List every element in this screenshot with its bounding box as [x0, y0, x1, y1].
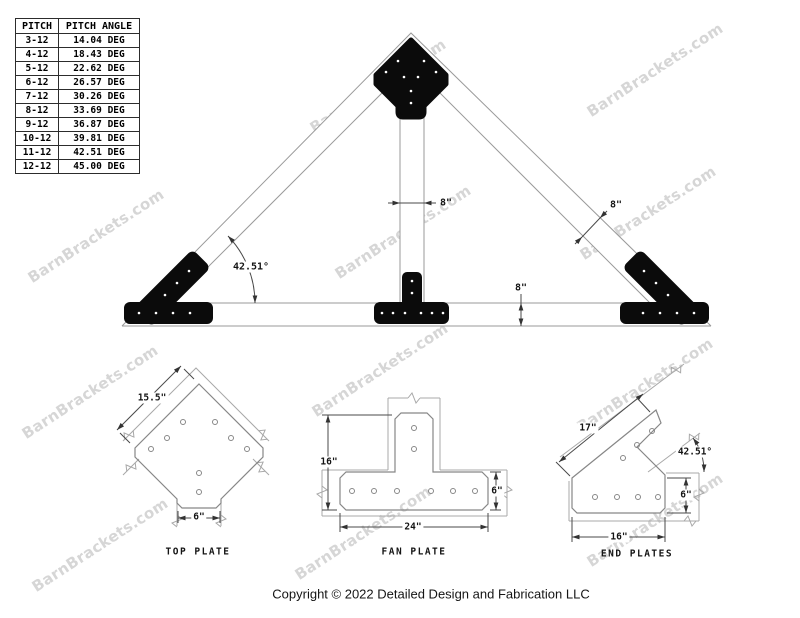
- pitch-angle-cell: 39.81 DEG: [59, 132, 140, 146]
- pitch-angle-cell: 45.00 DEG: [59, 160, 140, 174]
- pitch-table-row: 5-1222.62 DEG: [16, 62, 140, 76]
- pitch-angle-column-header: PITCH ANGLE: [59, 19, 140, 34]
- pitch-table-row: 10-1239.81 DEG: [16, 132, 140, 146]
- end-plates-dimensions: [556, 394, 704, 542]
- pitch-table-row: 9-1236.87 DEG: [16, 118, 140, 132]
- pitch-angle-cell: 22.62 DEG: [59, 62, 140, 76]
- fan-plate-holes: [350, 426, 478, 494]
- end-plates-base-dim: 16": [608, 532, 629, 543]
- fan-plate-width-dim: 24": [402, 522, 423, 533]
- fan-plate-beams: [317, 393, 512, 516]
- fan-plate-dimensions: [322, 415, 501, 532]
- top-plate-stem-dim: 6": [191, 512, 206, 523]
- pitch-cell: 7-12: [16, 90, 59, 104]
- copyright-notice: Copyright © 2022 Detailed Design and Fab…: [272, 587, 589, 602]
- pitch-cell: 3-12: [16, 34, 59, 48]
- top-plate-edge-dim: 15.5": [136, 393, 169, 404]
- pitch-angle-table: PITCH PITCH ANGLE 3-1214.04 DEG4-1218.43…: [15, 18, 140, 174]
- left-end-bracket: [124, 249, 213, 327]
- king-post-width-label: 8": [440, 198, 452, 209]
- right-end-bracket: [620, 249, 709, 327]
- pitch-cell: 8-12: [16, 104, 59, 118]
- pitch-table-row: 7-1230.26 DEG: [16, 90, 140, 104]
- pitch-table-header: PITCH PITCH ANGLE: [16, 19, 140, 34]
- fan-plate-height-dim: 16": [318, 457, 339, 468]
- end-plates-holes: [593, 429, 661, 500]
- pitch-cell: 11-12: [16, 146, 59, 160]
- pitch-cell: 6-12: [16, 76, 59, 90]
- pitch-cell: 4-12: [16, 48, 59, 62]
- rafter-width-label: 8": [610, 200, 622, 211]
- end-plates-angle-dim: 42.51°: [676, 447, 714, 458]
- end-plates-title: END PLATES: [601, 549, 673, 560]
- pitch-cell: 10-12: [16, 132, 59, 146]
- pitch-table-row: 3-1214.04 DEG: [16, 34, 140, 48]
- pitch-table-row: 12-1245.00 DEG: [16, 160, 140, 174]
- center-fan-bracket: [374, 272, 449, 324]
- end-plates-bar-dim: 6": [678, 490, 693, 501]
- end-plates-arm-dim: 17": [577, 423, 598, 434]
- fan-plate-bar-dim: 6": [489, 486, 504, 497]
- top-plate-title: TOP PLATE: [166, 547, 231, 558]
- peak-bracket: [376, 40, 446, 117]
- pitch-cell: 12-12: [16, 160, 59, 174]
- pitch-angle-cell: 30.26 DEG: [59, 90, 140, 104]
- pitch-angle-cell: 42.51 DEG: [59, 146, 140, 160]
- pitch-table-row: 11-1242.51 DEG: [16, 146, 140, 160]
- pitch-table-row: 4-1218.43 DEG: [16, 48, 140, 62]
- pitch-cell: 9-12: [16, 118, 59, 132]
- fan-plate-title: FAN PLATE: [382, 547, 447, 558]
- pitch-angle-cell: 33.69 DEG: [59, 104, 140, 118]
- fan-plate-outline: [340, 413, 488, 510]
- pitch-table-row: 6-1226.57 DEG: [16, 76, 140, 90]
- chord-height-label: 8": [515, 283, 527, 294]
- pitch-table-row: 8-1233.69 DEG: [16, 104, 140, 118]
- drawing-sheet: BarnBrackets.com BarnBrackets.com BarnBr…: [0, 0, 800, 618]
- pitch-angle-cell: 26.57 DEG: [59, 76, 140, 90]
- pitch-cell: 5-12: [16, 62, 59, 76]
- pitch-angle-cell: 36.87 DEG: [59, 118, 140, 132]
- pitch-angle-cell: 18.43 DEG: [59, 48, 140, 62]
- pitch-column-header: PITCH: [16, 19, 59, 34]
- pitch-angle-cell: 14.04 DEG: [59, 34, 140, 48]
- truss-angle-label: 42.51°: [231, 262, 271, 273]
- top-plate-holes: [149, 420, 250, 495]
